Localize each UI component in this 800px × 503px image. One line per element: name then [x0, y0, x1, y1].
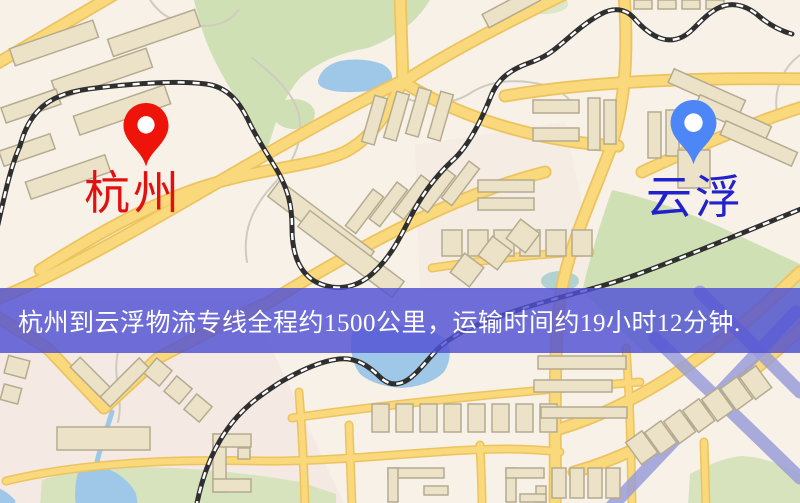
origin-label: 杭州 [84, 171, 182, 217]
route-info-text: 杭州到云浮物流专线全程约1500公里，运输时间约19小时12分钟. [0, 303, 741, 339]
destination-pin-shape[interactable] [671, 100, 717, 164]
origin-pin-hole [137, 116, 154, 133]
route-info-banner: 杭州到云浮物流专线全程约1500公里，运输时间约19小时12分钟. [0, 288, 800, 353]
destination-label: 云浮 [646, 175, 744, 221]
map-view: 杭州 云浮 杭州到云浮物流专线全程约1500公里，运输时间约19小时12分钟. [0, 0, 800, 503]
destination-pin-icon[interactable] [667, 99, 720, 167]
map-canvas [0, 0, 800, 503]
origin-pin-shape[interactable] [124, 103, 169, 166]
origin-pin-icon[interactable] [120, 102, 172, 169]
destination-pin-hole [684, 113, 702, 132]
